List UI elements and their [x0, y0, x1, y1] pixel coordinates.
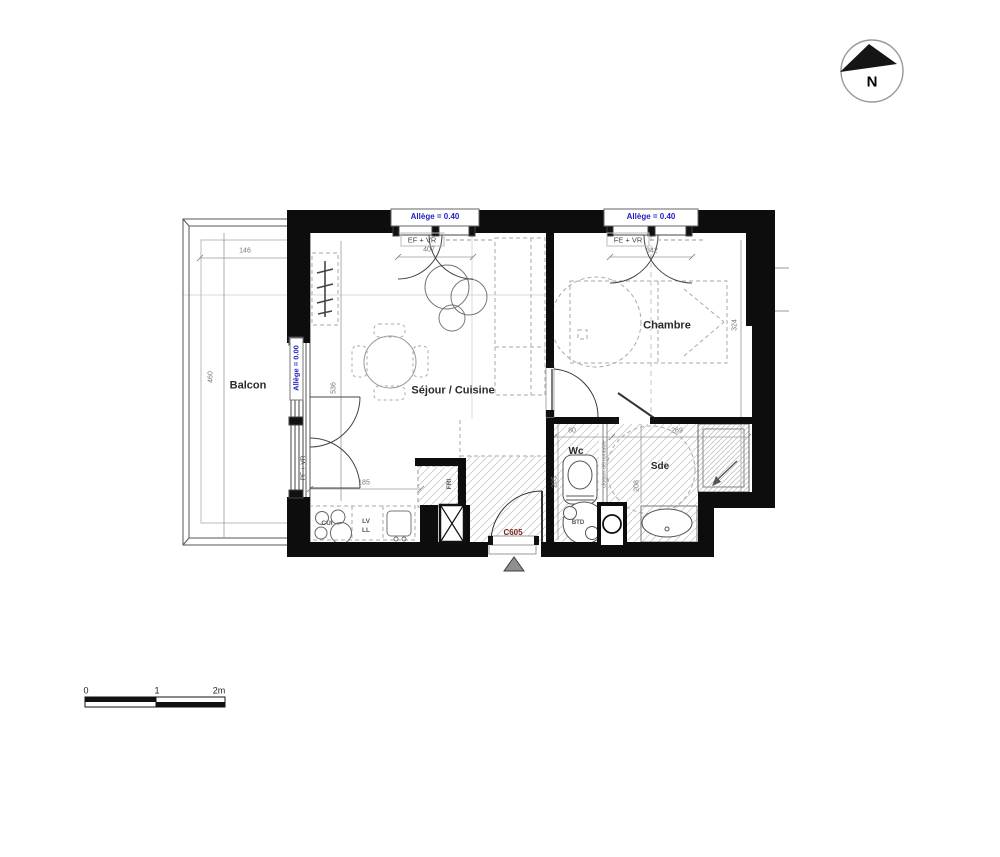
- room-label-chambre: Chambre: [643, 321, 691, 332]
- shower-icon: [698, 424, 749, 492]
- partition-label: cloison démontable: [602, 440, 608, 487]
- balcony-door-allege-label: Allège = 0.00: [292, 345, 300, 391]
- entry-door-code-label: C605: [503, 529, 522, 537]
- window1-width-dim: 407: [423, 247, 435, 254]
- room-label-balcon: Balcon: [230, 381, 267, 392]
- window2-allege-label: Allège = 0.40: [627, 213, 676, 221]
- dim-208: 208: [634, 480, 641, 492]
- dim-80: 80: [568, 428, 576, 435]
- turning-circle-chambre: [551, 277, 641, 367]
- window2-width-dim: 342: [646, 248, 658, 255]
- sofa-outline: [495, 238, 545, 395]
- hob-label: CUI: [321, 521, 332, 528]
- floor-plan-page: N Balcon Séjour / Cuisine Chambre Wc Sde…: [0, 0, 1000, 857]
- room-label-sde: Sde: [651, 462, 669, 472]
- sink-icon: [387, 511, 411, 541]
- dim-324: 324: [732, 319, 739, 331]
- sejour-furniture: [312, 238, 545, 400]
- dim-536: 536: [331, 382, 338, 394]
- dim-269: 269: [671, 428, 683, 435]
- scale-bar: [85, 697, 225, 707]
- north-compass-icon: [840, 40, 903, 102]
- scale-0-label: 0: [83, 687, 88, 696]
- window1-allege-label: Allège = 0.40: [411, 213, 460, 221]
- window1-type-label: EF + VR: [408, 236, 437, 244]
- duct-kitchen: [420, 505, 438, 547]
- scale-2m-label: 2m: [213, 687, 226, 696]
- dishwasher-label: LV: [362, 519, 370, 526]
- compass-n-label: N: [867, 75, 878, 90]
- fridge-label: FRI: [447, 479, 454, 489]
- dim-185: 185: [358, 480, 370, 487]
- entry-arrow-icon: [504, 557, 524, 571]
- scale-1-label: 1: [154, 687, 159, 696]
- chambre-door: [546, 361, 598, 417]
- dim-460: 460: [208, 371, 215, 383]
- floor-plan-drawing: [0, 0, 1000, 857]
- radiator-icon: [317, 261, 333, 317]
- chambre-furniture: [551, 277, 727, 367]
- room-label-sejour-cuisine: Séjour / Cuisine: [411, 386, 494, 397]
- duct-sde: [599, 504, 625, 547]
- plant-icon: [425, 265, 487, 331]
- toilet-icon: [563, 455, 597, 504]
- duct-x-box: [440, 505, 464, 542]
- dim-146: 146: [239, 248, 251, 255]
- balcony-door-type-label: PF + VR: [301, 456, 308, 481]
- sde-door: [612, 393, 657, 424]
- window2-type-label: FE + VR: [614, 236, 643, 244]
- water-heater-label: BTD: [572, 520, 584, 526]
- room-label-wc: Wc: [569, 447, 584, 457]
- dim-205: 205: [552, 476, 559, 488]
- washer-label: LL: [362, 528, 370, 535]
